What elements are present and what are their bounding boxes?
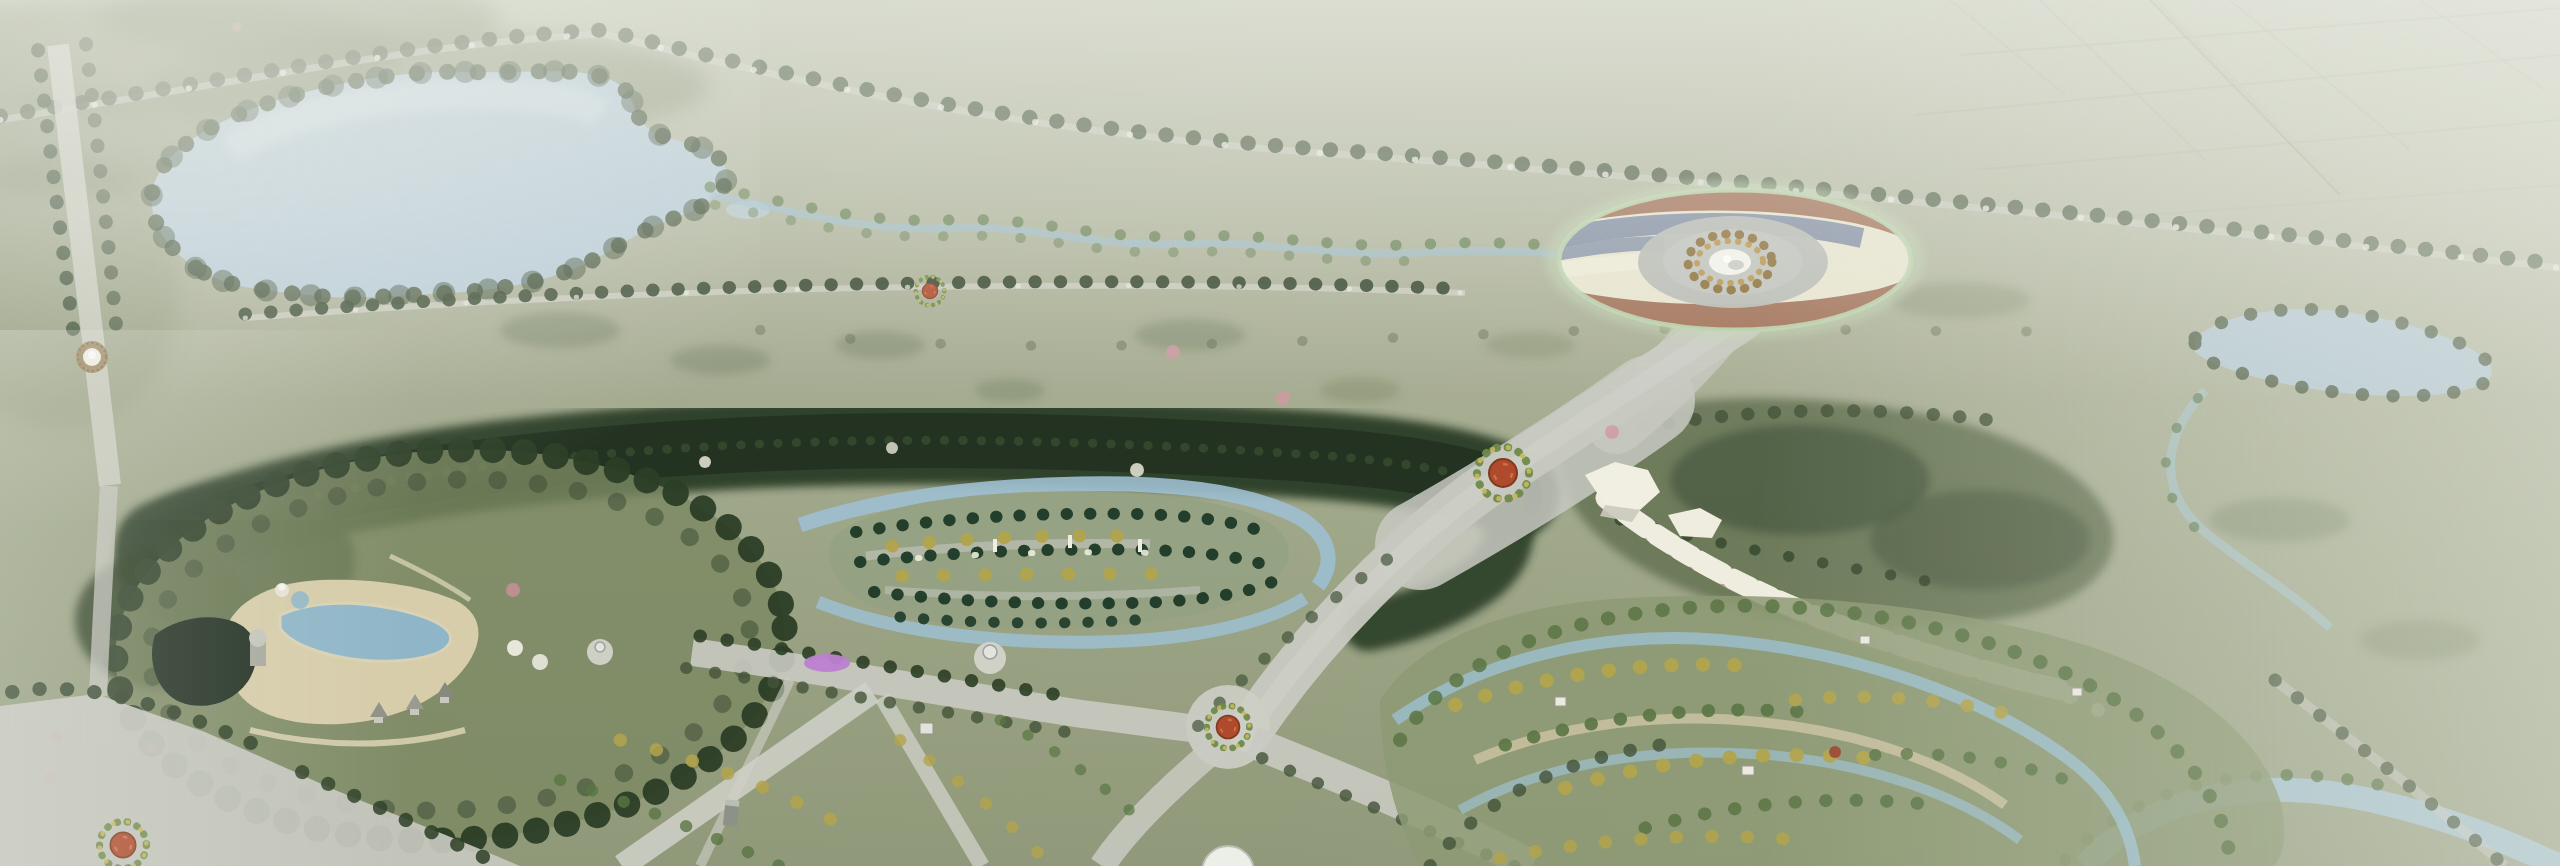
stone-monument: [723, 799, 740, 826]
haze-right: [1750, 0, 2560, 866]
white-bloom-tree: [886, 442, 898, 454]
pink-bloom-tree: [506, 583, 520, 597]
magenta-flowerbed: [804, 654, 850, 672]
plaza-statue: [595, 642, 605, 652]
garden-obelisk: [1068, 535, 1072, 548]
masterplan-canvas: [0, 0, 2560, 866]
white-bloom-tree: [1130, 463, 1144, 477]
park-masterplan-rendering: [0, 0, 2560, 866]
gazebo-dome: [983, 645, 997, 659]
orchard-pavilion: [1555, 697, 1566, 706]
garden-obelisk: [993, 539, 997, 552]
small-pavilion: [920, 723, 933, 734]
haze-left-streak: [0, 330, 420, 866]
hut-base: [440, 696, 449, 703]
white-pavilion: [507, 640, 523, 656]
white-pavilion: [532, 654, 548, 670]
garden-obelisk: [1138, 539, 1142, 552]
